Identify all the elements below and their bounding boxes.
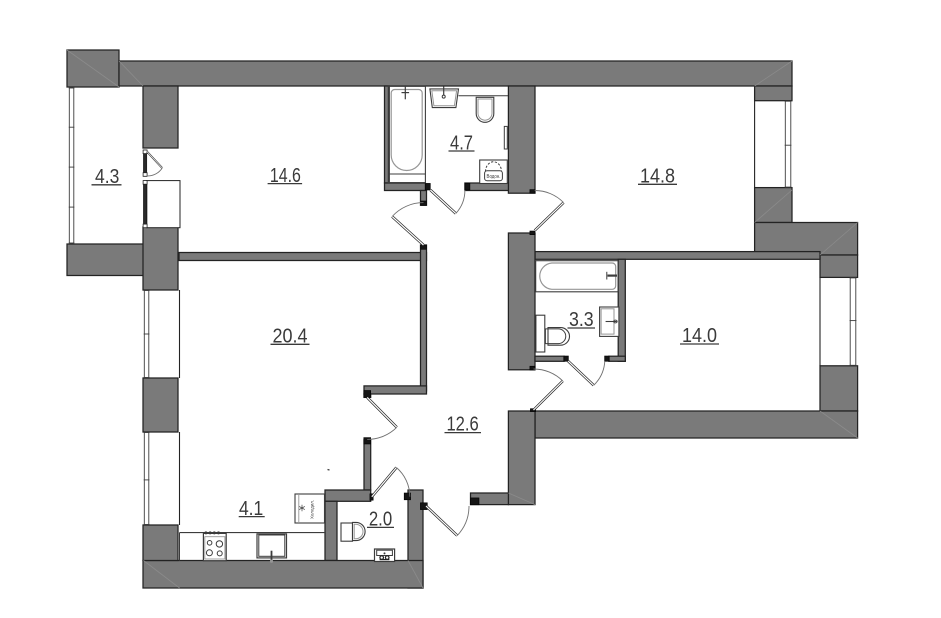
svg-text:Холодил.: Холодил. [310, 500, 315, 519]
svg-text:Водон.: Водон. [487, 174, 501, 180]
